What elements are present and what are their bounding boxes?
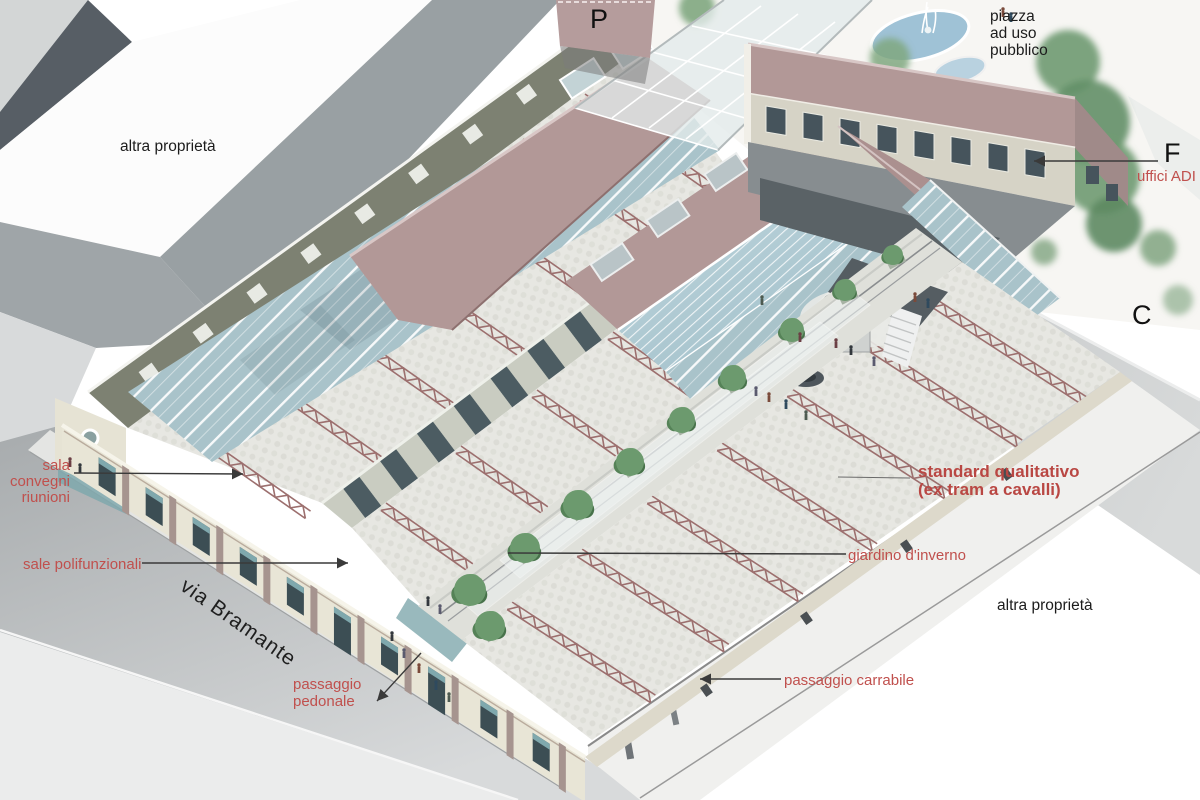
person <box>439 608 442 614</box>
label-parcheggio: P <box>590 4 608 34</box>
person <box>391 635 394 641</box>
person <box>79 467 82 473</box>
person <box>755 390 758 396</box>
person <box>760 295 763 298</box>
label-standard-line2: (ex tram a cavalli) <box>918 480 1061 499</box>
adi-window <box>803 112 823 141</box>
adi-window <box>914 130 934 159</box>
person <box>872 356 875 359</box>
person <box>438 604 441 607</box>
person <box>426 596 429 599</box>
label-pedonale-line1: passaggio <box>293 676 361 693</box>
person <box>926 298 929 301</box>
person <box>448 696 451 702</box>
label-passaggio-pedonale: passaggio pedonale <box>293 676 361 710</box>
person <box>754 386 757 389</box>
person <box>873 360 876 366</box>
label-giardino-inverno: giardino d'inverno <box>848 547 966 564</box>
label-sale-polifunzionali: sale polifunzionali <box>23 556 141 573</box>
label-pedonale-line2: pedonale <box>293 693 355 710</box>
label-uffici-adi: uffici ADI <box>1137 168 1196 185</box>
person <box>785 403 788 409</box>
person <box>434 680 437 683</box>
person <box>835 342 838 348</box>
person <box>914 296 917 302</box>
person <box>784 399 787 402</box>
person <box>834 338 837 341</box>
adi-window <box>988 143 1008 172</box>
label-f-marker: F <box>1164 138 1181 168</box>
person <box>78 463 81 466</box>
label-sala-line2: convegni <box>10 473 70 490</box>
person <box>849 345 852 348</box>
label-altra-proprieta-top: altra proprietà <box>120 138 216 155</box>
adi-window <box>877 124 897 153</box>
person <box>927 302 930 308</box>
label-piazza-line1: piazza <box>990 8 1035 25</box>
person <box>799 336 802 342</box>
person <box>767 392 770 395</box>
label-c-marker: C <box>1132 300 1152 330</box>
adi-window <box>840 118 860 147</box>
pilaster <box>357 615 364 666</box>
adi-window <box>766 106 786 135</box>
person <box>403 652 406 658</box>
person <box>447 692 450 695</box>
label-altra-proprieta-bottom: altra proprietà <box>997 597 1093 614</box>
label-piazza-line3: pubblico <box>990 42 1048 59</box>
person <box>417 663 420 666</box>
label-passaggio-carrabile: passaggio carrabile <box>784 672 914 689</box>
pilaster <box>169 495 176 546</box>
architectural-rendering: altra proprietà P piazza ad uso pubblico… <box>0 0 1200 800</box>
person <box>418 667 421 673</box>
pilaster <box>559 742 566 793</box>
person <box>390 631 393 634</box>
person <box>850 349 853 355</box>
leader-sala-convegni <box>74 473 243 474</box>
leader-giardino <box>508 553 846 554</box>
person <box>761 299 764 305</box>
person <box>427 600 430 606</box>
person <box>805 414 808 420</box>
person <box>804 410 807 413</box>
adi-window <box>1025 149 1045 178</box>
person <box>768 396 771 402</box>
pilaster <box>216 525 223 576</box>
pilaster <box>507 709 514 760</box>
label-sala-line1: sala <box>42 457 70 474</box>
person <box>798 332 801 335</box>
person <box>402 648 405 651</box>
person <box>913 292 916 295</box>
rendering-canvas: altra proprietà P piazza ad uso pubblico… <box>0 0 1200 800</box>
label-sala-line3: riunioni <box>22 489 70 506</box>
pilaster <box>310 585 317 636</box>
pilaster <box>452 674 459 725</box>
label-standard-line1: standard qualitativo <box>918 462 1080 481</box>
label-standard-qualitativo: standard qualitativo (ex tram a cavalli) <box>918 462 1080 499</box>
label-piazza-line2: ad uso <box>990 25 1037 42</box>
adi-window <box>951 136 971 165</box>
person <box>435 684 438 690</box>
